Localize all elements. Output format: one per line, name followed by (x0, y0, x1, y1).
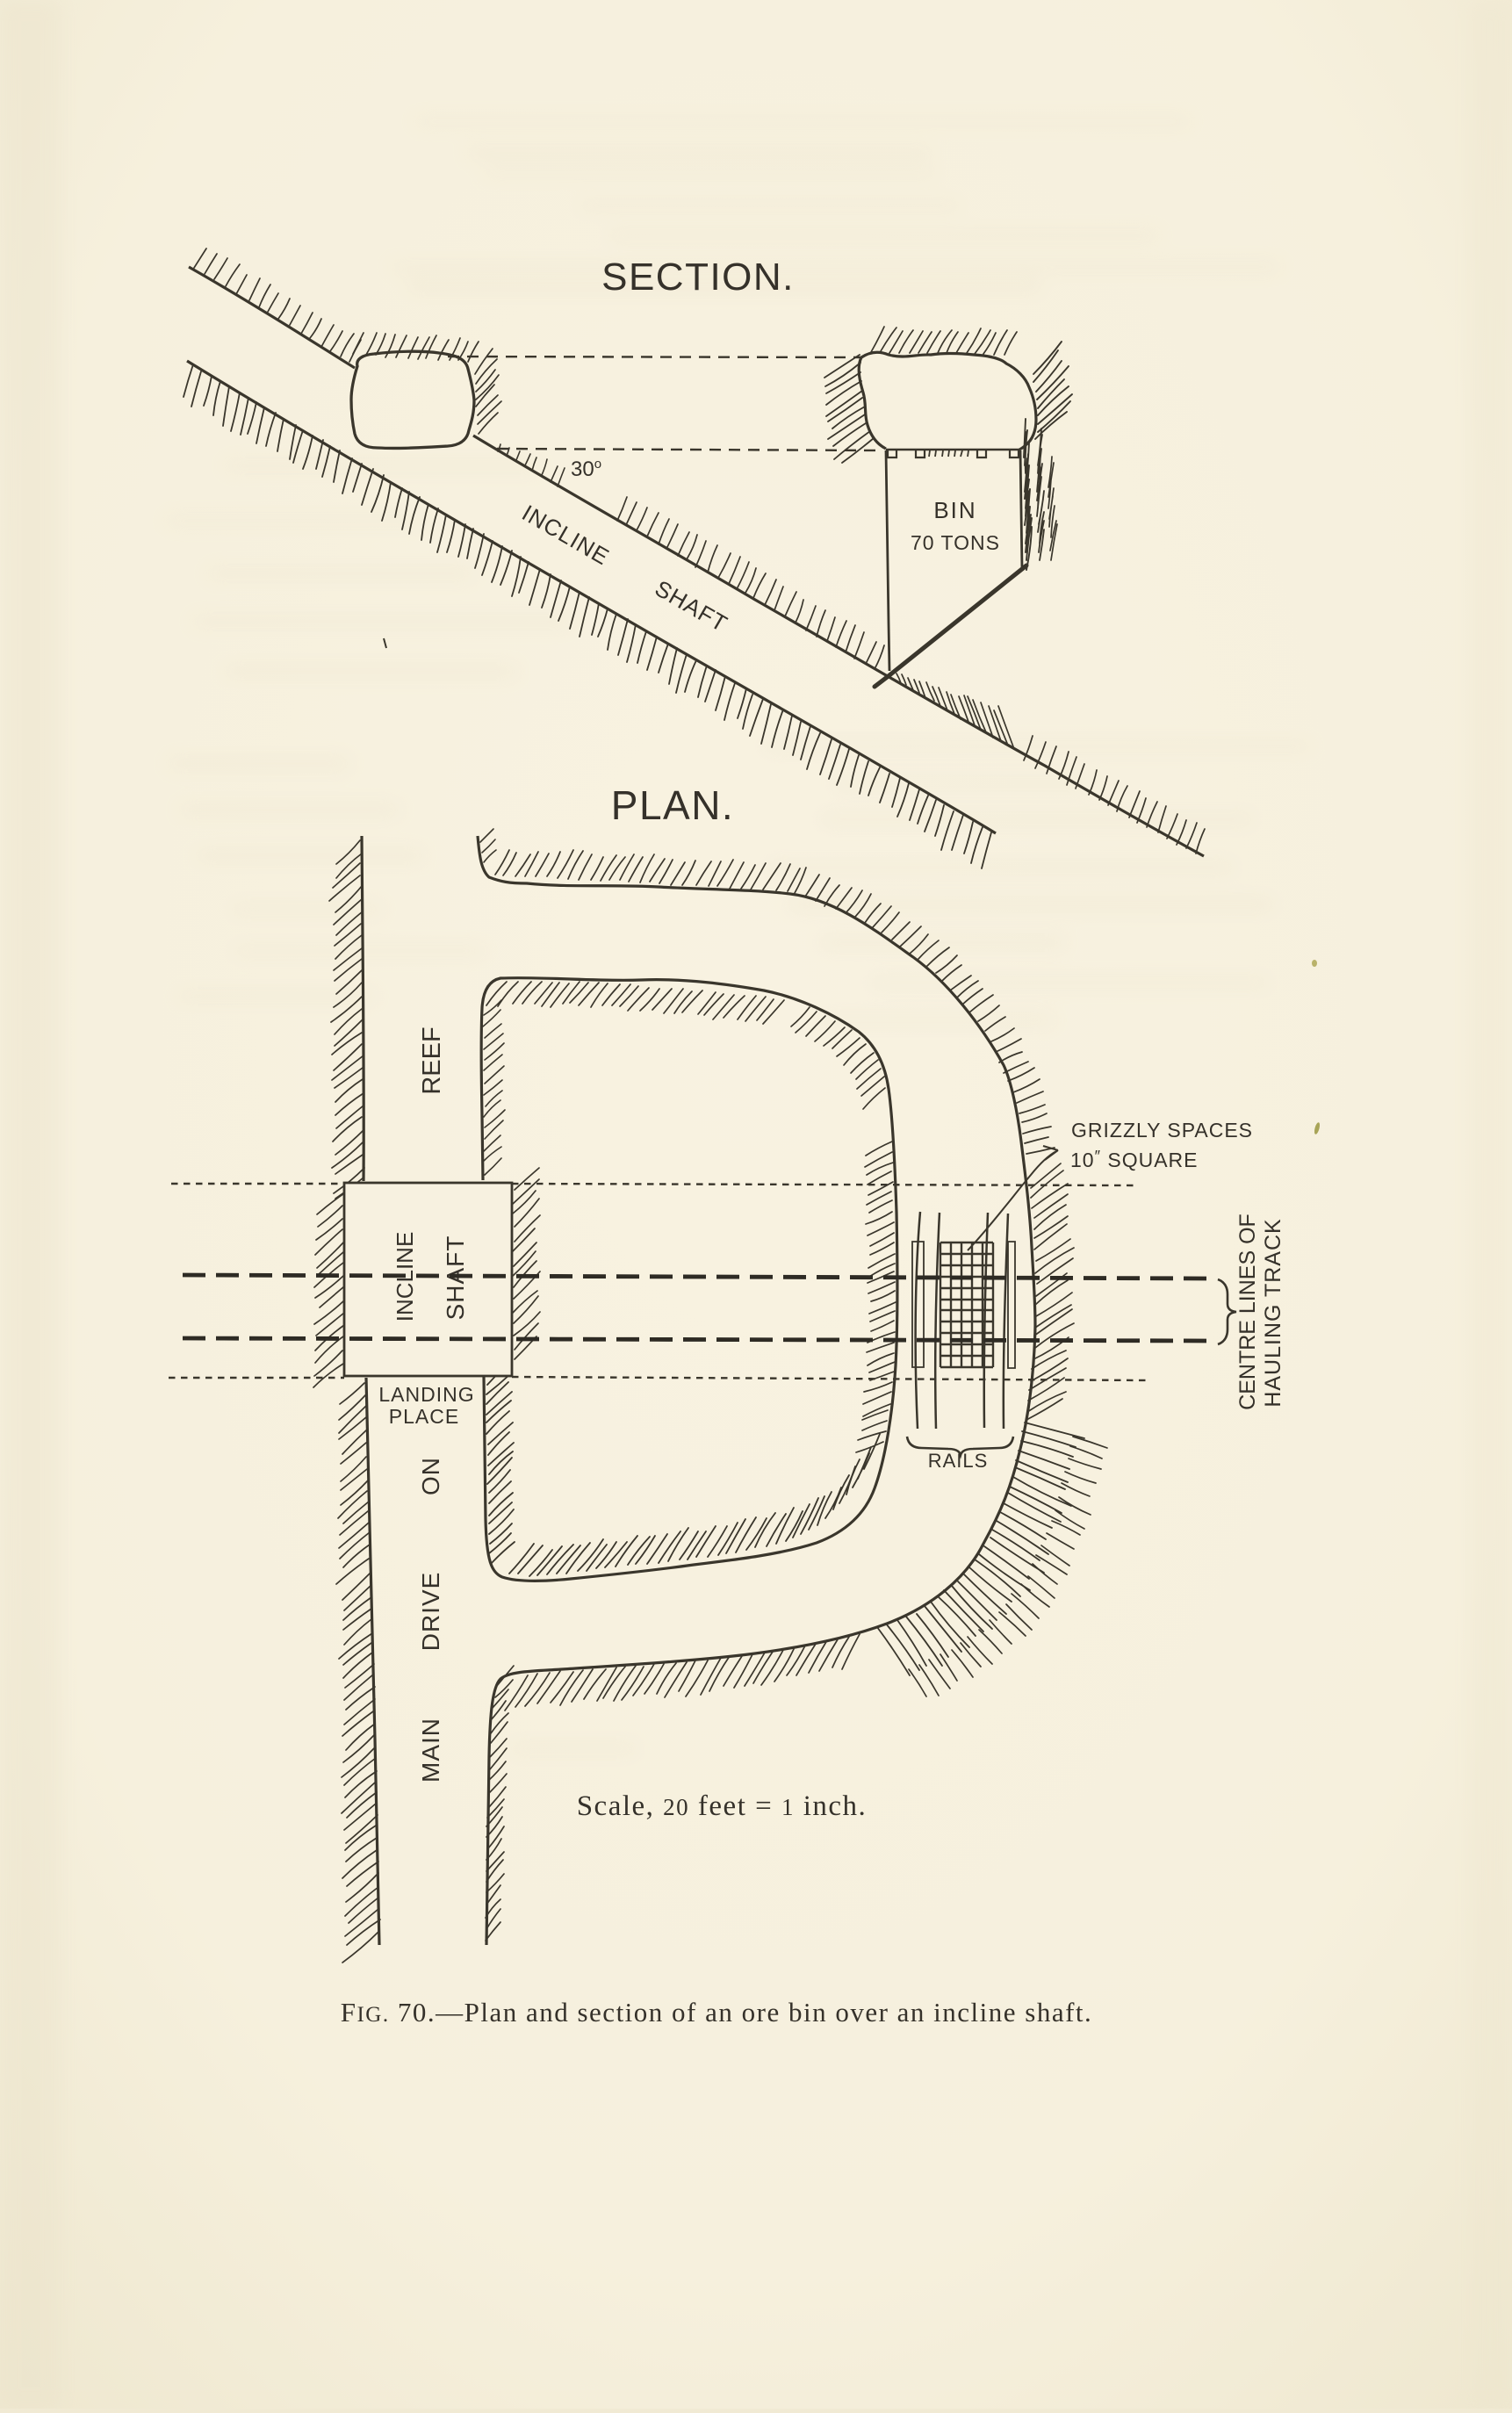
svg-text:MAIN: MAIN (417, 1718, 444, 1783)
svg-text:FIG. 70.—Plan and section of a: FIG. 70.—Plan and section of an ore bin … (341, 1997, 1093, 2028)
svg-text:HAULING TRACK: HAULING TRACK (1261, 1218, 1285, 1407)
svg-text:SECTION.: SECTION. (601, 256, 795, 299)
svg-text:BIN: BIN (933, 497, 976, 523)
svg-text:PLAN.: PLAN. (611, 782, 734, 828)
svg-text:Scale, 20 feet = 1 inch.: Scale, 20 feet = 1 inch. (577, 1790, 868, 1822)
svg-text:GRIZZLY SPACES: GRIZZLY SPACES (1071, 1119, 1253, 1142)
svg-text:REEF: REEF (418, 1026, 446, 1094)
svg-text:70 TONS: 70 TONS (911, 531, 1000, 554)
svg-text:DRIVE: DRIVE (417, 1572, 444, 1652)
svg-text:PLACE: PLACE (389, 1405, 459, 1428)
svg-text:RAILS: RAILS (928, 1450, 989, 1472)
svg-text:LANDING: LANDING (378, 1383, 474, 1406)
svg-text:10″ SQUARE: 10″ SQUARE (1070, 1148, 1199, 1171)
svg-text:CENTRE LINES OF: CENTRE LINES OF (1235, 1214, 1260, 1410)
svg-text:ON: ON (417, 1457, 444, 1495)
